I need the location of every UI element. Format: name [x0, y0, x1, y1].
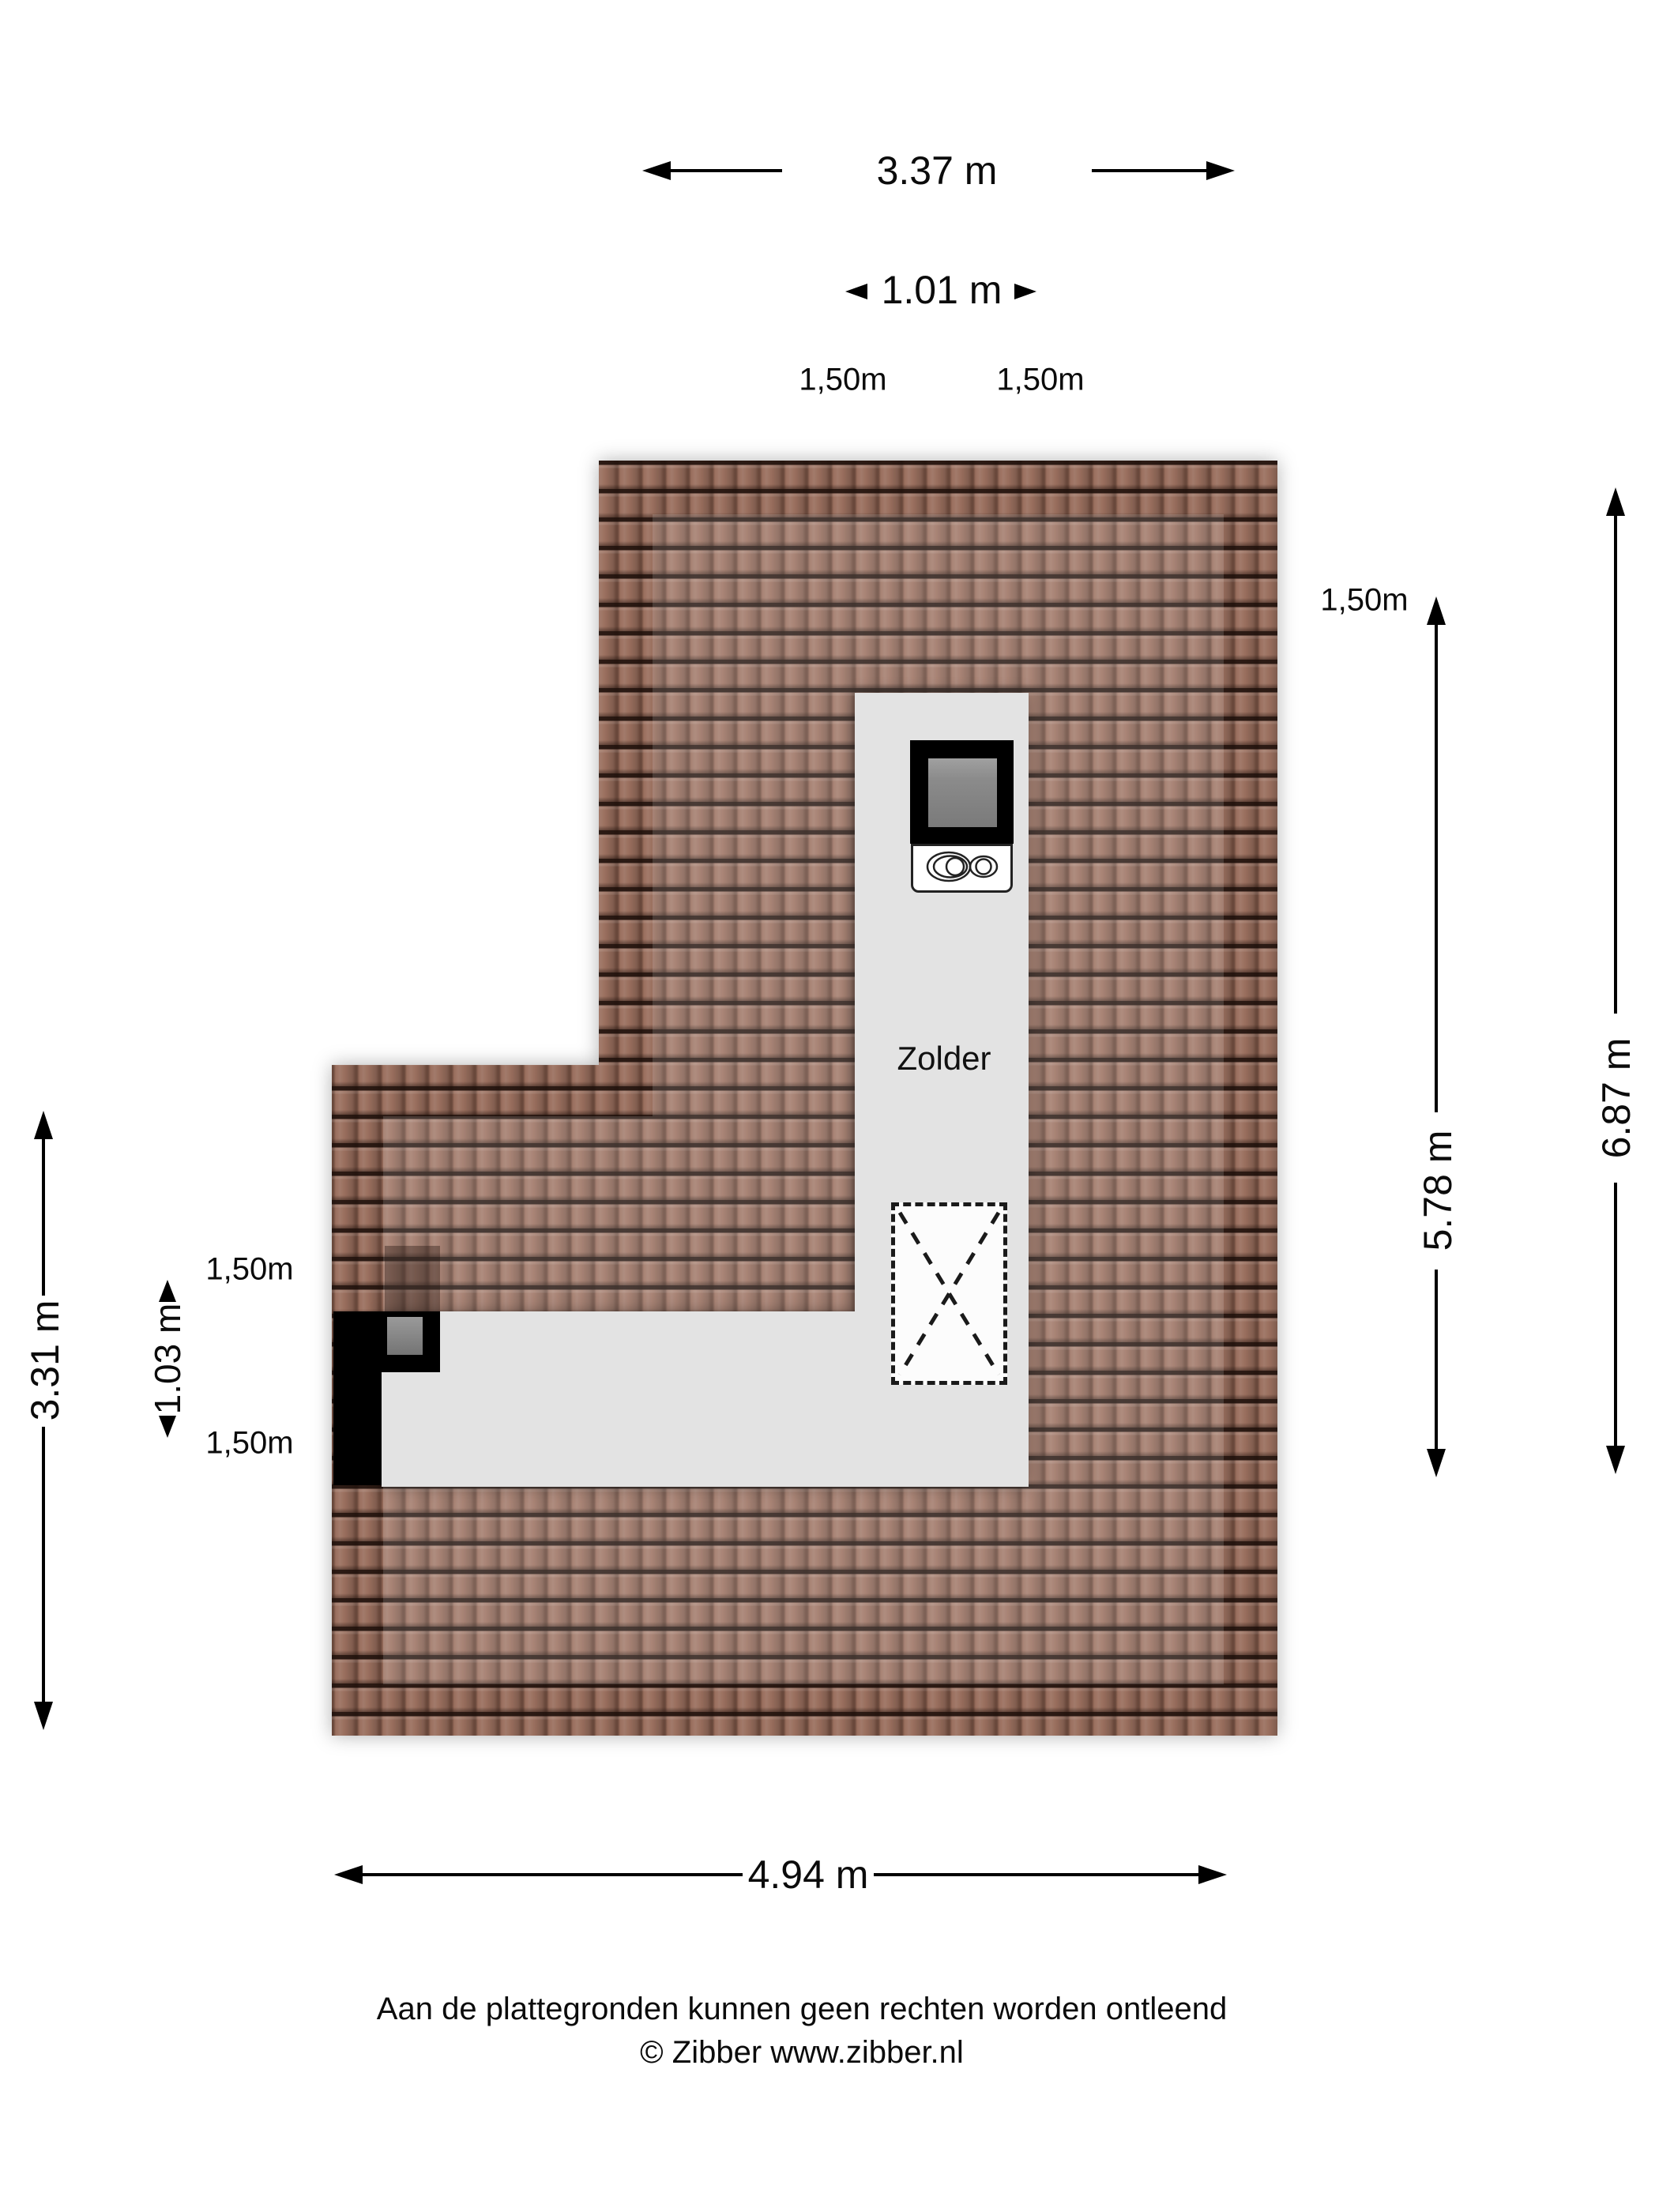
headroom-label-left-top: 1,50m — [205, 1252, 293, 1288]
dim-arrow-right-578 — [1427, 596, 1446, 1477]
dim-label-right-inner-height: 5.78 m — [1415, 1130, 1461, 1251]
headroom-label-right: 1,50m — [1320, 583, 1408, 619]
floorplan-canvas: Zolder — [0, 0, 1659, 2212]
headroom-label-top-left: 1,50m — [799, 363, 886, 398]
headroom-label-left-bottom: 1,50m — [205, 1426, 293, 1461]
dim-label-left-inner-width: 1.03 m — [146, 1303, 189, 1415]
dim-label-right-outer-height: 6.87 m — [1593, 1038, 1639, 1159]
dim-arrow-right-687 — [1606, 487, 1625, 1474]
footer: Aan de plattegronden kunnen geen rechten… — [377, 1988, 1227, 2075]
footer-disclaimer: Aan de plattegronden kunnen geen rechten… — [377, 1988, 1227, 2031]
dim-label-top-inner-width: 1.01 m — [882, 267, 1003, 313]
headroom-label-top-right: 1,50m — [996, 363, 1084, 398]
footer-copyright: © Zibber www.zibber.nl — [377, 2031, 1227, 2075]
dim-label-bottom-width: 4.94 m — [748, 1852, 869, 1898]
dim-label-top-width: 3.37 m — [877, 148, 998, 194]
dim-label-left-height: 3.31 m — [22, 1300, 68, 1421]
